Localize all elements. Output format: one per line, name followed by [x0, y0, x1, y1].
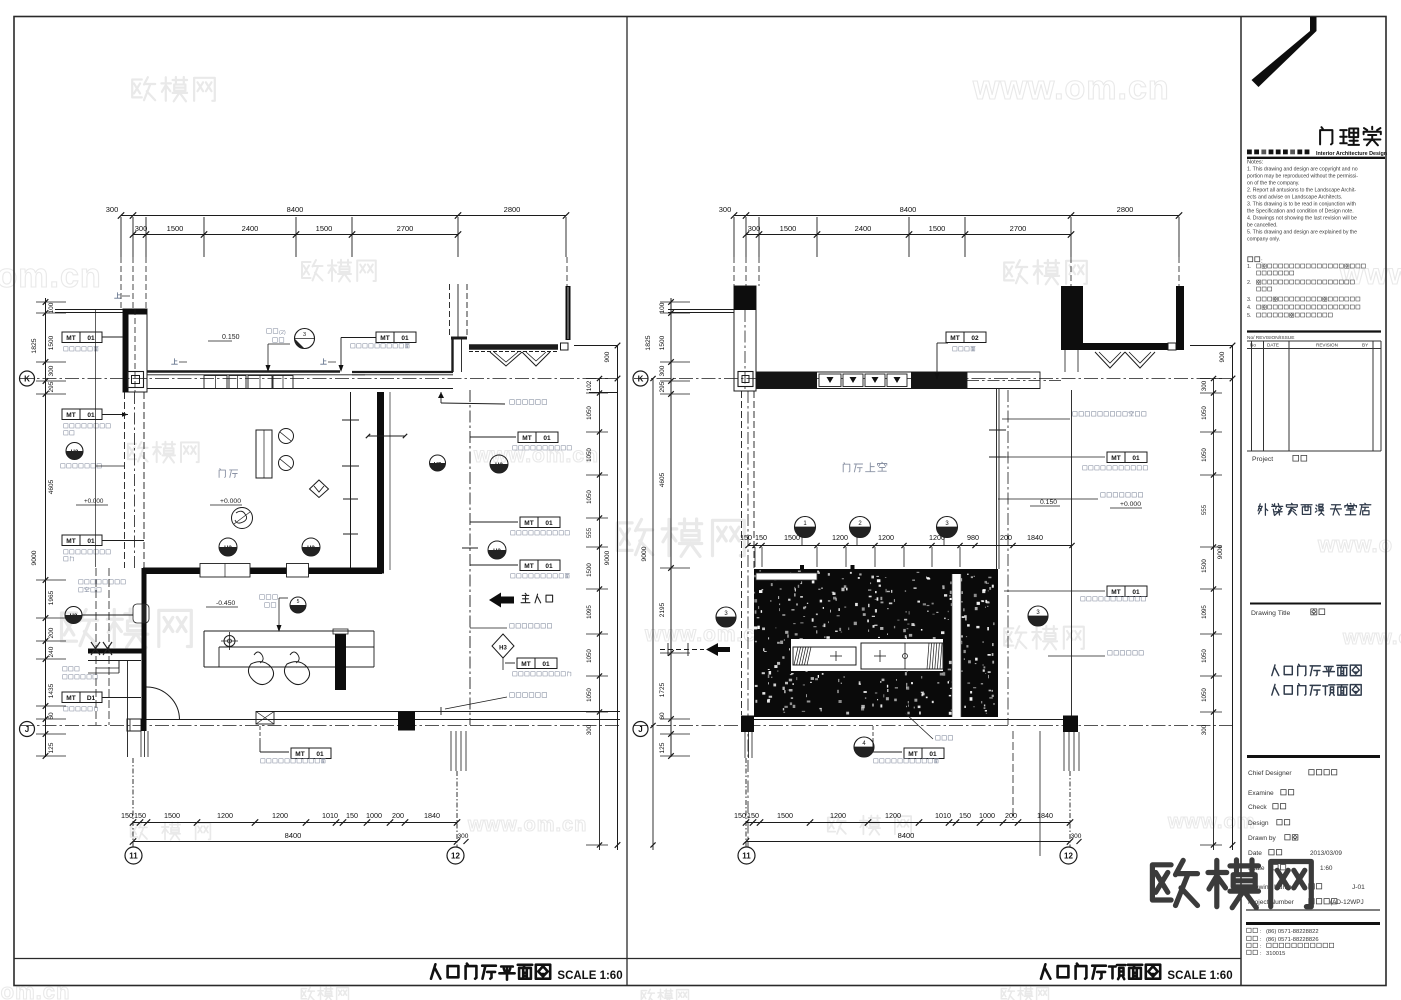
svg-text:+0.000: +0.000: [84, 498, 104, 505]
svg-text:H3: H3: [499, 646, 507, 652]
svg-text:SCALE 1:60: SCALE 1:60: [1167, 970, 1232, 982]
svg-text:MT: MT: [66, 412, 75, 419]
svg-text:60: 60: [48, 712, 55, 720]
svg-text:-0.450: -0.450: [216, 600, 235, 607]
svg-text:(2): (2): [279, 330, 286, 336]
svg-text:1965: 1965: [48, 590, 55, 605]
svg-text:01: 01: [1132, 589, 1140, 596]
svg-text:900: 900: [1219, 351, 1226, 362]
svg-text:(86) 0571-88228826: (86) 0571-88228826: [1266, 937, 1319, 943]
svg-text:5.: 5.: [1247, 313, 1252, 319]
svg-text:1725: 1725: [659, 682, 666, 697]
svg-text:1010: 1010: [935, 811, 951, 820]
svg-text:150: 150: [346, 811, 358, 820]
svg-text:310015: 310015: [1266, 951, 1285, 957]
svg-text:company only.: company only.: [1247, 237, 1280, 243]
svg-text:240: 240: [48, 646, 55, 657]
svg-text:MT: MT: [66, 538, 75, 545]
svg-text:4605: 4605: [659, 472, 666, 487]
svg-text:www.om.cn: www.om.cn: [467, 814, 587, 836]
svg-text:www.om.cn: www.om.cn: [473, 444, 599, 467]
svg-text:9000: 9000: [31, 550, 38, 565]
svg-text:300: 300: [135, 224, 148, 233]
svg-text:0.150: 0.150: [222, 334, 240, 341]
svg-text:02: 02: [971, 335, 979, 342]
svg-text:01: 01: [87, 538, 95, 545]
svg-text:12: 12: [1064, 852, 1073, 861]
svg-text:125: 125: [659, 742, 666, 753]
svg-text:1050: 1050: [586, 490, 593, 504]
svg-text:150: 150: [121, 811, 133, 820]
svg-text:MT: MT: [1111, 589, 1120, 596]
svg-text:1.: 1.: [1247, 264, 1252, 270]
svg-text:MT: MT: [66, 695, 75, 702]
svg-text:300: 300: [106, 205, 119, 214]
svg-text:1200: 1200: [885, 811, 901, 820]
svg-text:No/ REVISION/ISSUE: No/ REVISION/ISSUE: [1247, 335, 1294, 341]
svg-text:295: 295: [659, 381, 666, 392]
svg-text:1825: 1825: [31, 338, 38, 353]
svg-text:2013/03/09: 2013/03/09: [1310, 850, 1342, 857]
svg-text:1050: 1050: [1201, 448, 1208, 462]
svg-text:5. This drawing and design are: 5. This drawing and design are explained…: [1247, 230, 1357, 236]
svg-text:Check: Check: [1248, 804, 1267, 811]
svg-text:MT: MT: [950, 335, 959, 342]
svg-text:01: 01: [545, 563, 553, 570]
svg-text:2700: 2700: [1010, 224, 1027, 233]
svg-text:1050: 1050: [1201, 649, 1208, 663]
svg-text:1840: 1840: [1037, 811, 1053, 820]
svg-text:1050: 1050: [586, 406, 593, 420]
svg-text:1200: 1200: [217, 811, 233, 820]
svg-text:+0.000: +0.000: [1120, 501, 1141, 508]
svg-text:900: 900: [604, 351, 611, 362]
svg-text:MT: MT: [524, 520, 533, 527]
svg-text:MT: MT: [66, 335, 75, 342]
svg-text:MT: MT: [521, 661, 530, 668]
svg-text:2700: 2700: [397, 224, 414, 233]
svg-text:1050: 1050: [1201, 688, 1208, 702]
svg-text:1050: 1050: [586, 688, 593, 702]
svg-text:150: 150: [134, 811, 146, 820]
svg-text:9000: 9000: [604, 550, 611, 565]
svg-text:2400: 2400: [242, 224, 259, 233]
svg-text:be cancelled.: be cancelled.: [1247, 223, 1278, 229]
svg-text:1010: 1010: [322, 811, 338, 820]
svg-text:200: 200: [48, 627, 55, 638]
svg-text:5: 5: [297, 599, 300, 605]
svg-text:300: 300: [1201, 724, 1208, 735]
svg-text:01: 01: [1132, 455, 1140, 462]
svg-text:on of the the company.: on of the the company.: [1247, 181, 1299, 187]
svg-text:J: J: [638, 725, 642, 734]
svg-text:SCALE 1:60: SCALE 1:60: [557, 970, 622, 982]
svg-text:300: 300: [48, 365, 55, 376]
svg-text:ects and advise on Landscape: ects and advise on Landscape Architects.: [1247, 195, 1342, 201]
svg-text:295: 295: [48, 381, 55, 392]
svg-text:2800: 2800: [504, 205, 521, 214]
svg-text:1:60: 1:60: [1320, 865, 1333, 872]
svg-text:(86) 0571-88228822: (86) 0571-88228822: [1266, 929, 1319, 935]
svg-text:4. Drawings not showing the la: 4. Drawings not showing the last revisio…: [1247, 216, 1357, 222]
svg-text:2195: 2195: [659, 602, 666, 617]
svg-text:01: 01: [543, 435, 551, 442]
svg-text:Notes:: Notes:: [1247, 160, 1264, 166]
svg-text:Chief Designer: Chief Designer: [1248, 770, 1292, 777]
svg-text:60: 60: [659, 712, 666, 720]
svg-text:K: K: [24, 375, 30, 384]
svg-text:1000: 1000: [366, 811, 382, 820]
svg-text:100: 100: [48, 302, 55, 313]
svg-text:100: 100: [659, 302, 666, 313]
svg-text:1000: 1000: [979, 811, 995, 820]
svg-text:300: 300: [1201, 380, 1208, 391]
svg-text:Drawn by: Drawn by: [1248, 835, 1277, 842]
svg-text:Project: Project: [1252, 456, 1273, 463]
svg-text:200: 200: [1000, 533, 1012, 542]
svg-text:125: 125: [48, 742, 55, 753]
svg-text:8400: 8400: [900, 205, 917, 214]
svg-text:01: 01: [545, 520, 553, 527]
svg-text:01: 01: [929, 751, 937, 758]
svg-text:2400: 2400: [855, 224, 872, 233]
svg-text:1500: 1500: [1201, 559, 1208, 573]
svg-text:Date: Date: [1248, 850, 1262, 857]
svg-text:1500: 1500: [316, 224, 333, 233]
svg-text:MT: MT: [522, 435, 531, 442]
svg-text:1840: 1840: [1027, 533, 1043, 542]
svg-text:1840: 1840: [424, 811, 440, 820]
svg-text:MT: MT: [295, 751, 304, 758]
svg-text:1200: 1200: [832, 533, 848, 542]
svg-text:11: 11: [742, 852, 751, 861]
svg-text:+0.000: +0.000: [220, 498, 241, 505]
svg-text:1500: 1500: [780, 224, 797, 233]
svg-text:1500: 1500: [929, 224, 946, 233]
svg-text:4.: 4.: [1247, 305, 1252, 311]
svg-text:1200: 1200: [830, 811, 846, 820]
svg-text:1500: 1500: [586, 563, 593, 577]
svg-text:980: 980: [967, 533, 979, 542]
svg-text:1050: 1050: [1201, 406, 1208, 420]
svg-text:1435: 1435: [48, 683, 55, 698]
svg-text:300: 300: [586, 724, 593, 735]
svg-text:4605: 4605: [48, 479, 55, 494]
svg-text:555: 555: [586, 527, 593, 538]
svg-text:0.150: 0.150: [1040, 499, 1057, 506]
svg-text:8400: 8400: [285, 831, 302, 840]
svg-text:Drawing Title: Drawing Title: [1251, 610, 1291, 617]
svg-text:1500: 1500: [48, 335, 55, 350]
svg-text:01: 01: [87, 335, 95, 342]
svg-text:MT: MT: [908, 751, 917, 758]
svg-text:1095: 1095: [1201, 605, 1208, 619]
svg-text:3: 3: [303, 332, 306, 338]
svg-text:www.o: www.o: [1317, 532, 1393, 557]
svg-text:3.: 3.: [1247, 297, 1252, 303]
svg-text:1. This drawing and design are: 1. This drawing and design are copyright…: [1247, 167, 1358, 173]
svg-text:MT: MT: [1111, 455, 1120, 462]
svg-text:portion may be reproduced with: portion may be reproduced without the pe…: [1247, 174, 1358, 180]
svg-text:300: 300: [1071, 833, 1082, 840]
svg-text:MT: MT: [524, 563, 533, 570]
svg-text:www.om.cn: www.om.cn: [0, 979, 70, 1000]
svg-text:1200: 1200: [272, 811, 288, 820]
svg-text:01: 01: [316, 751, 324, 758]
svg-text:200: 200: [1005, 811, 1017, 820]
svg-text:REVISION: REVISION: [1316, 343, 1338, 348]
svg-text:1200: 1200: [878, 533, 894, 542]
svg-text:200: 200: [392, 811, 404, 820]
svg-text:(AD-12WPJ: (AD-12WPJ: [1330, 899, 1364, 906]
svg-text:www.om.cn: www.om.cn: [0, 257, 102, 295]
svg-text:1825: 1825: [645, 335, 652, 350]
svg-text:150: 150: [740, 533, 752, 542]
svg-text:1095: 1095: [586, 605, 593, 619]
svg-text:1500: 1500: [659, 335, 666, 350]
svg-text:1500: 1500: [777, 811, 793, 820]
svg-text:2.: 2.: [1247, 280, 1252, 286]
svg-text:12: 12: [451, 852, 460, 861]
svg-text:150: 150: [755, 533, 767, 542]
svg-text:www.o: www.o: [1339, 258, 1401, 291]
svg-text:1050: 1050: [586, 448, 593, 462]
svg-text:9000: 9000: [1217, 544, 1224, 559]
svg-text:9000: 9000: [641, 546, 648, 561]
svg-text:150: 150: [734, 811, 746, 820]
svg-text:8400: 8400: [898, 831, 915, 840]
svg-text:www.om: www.om: [1167, 811, 1255, 833]
svg-text:01: 01: [401, 335, 409, 342]
svg-text:Interior Architecture Design: Interior Architecture Design: [1316, 151, 1387, 157]
svg-text:www.om.cn: www.om.cn: [972, 69, 1170, 107]
svg-text:2800: 2800: [1117, 205, 1134, 214]
svg-text:3. This drawing is to be read: 3. This drawing is to be read in conjunc…: [1247, 202, 1356, 208]
svg-text:8400: 8400: [287, 205, 304, 214]
svg-text:1500: 1500: [164, 811, 180, 820]
svg-text:No: No: [1250, 343, 1256, 348]
svg-text:2. Report all antusions to the: 2. Report all antusions to the Landscape…: [1247, 188, 1356, 194]
svg-text:Examine: Examine: [1248, 790, 1274, 797]
svg-text:102: 102: [586, 380, 593, 391]
svg-text:300: 300: [659, 365, 666, 376]
svg-text:www.om.cn: www.om.cn: [644, 623, 770, 646]
svg-text:www.om: www.om: [1342, 627, 1401, 649]
svg-text:150: 150: [959, 811, 971, 820]
svg-text:300: 300: [748, 224, 761, 233]
svg-text:300: 300: [458, 833, 469, 840]
svg-text:D1: D1: [87, 695, 96, 702]
svg-text:the Specification and conditio: the Specification and condition of Desig…: [1247, 209, 1354, 215]
svg-text:MT: MT: [380, 335, 389, 342]
svg-text:1500: 1500: [167, 224, 184, 233]
svg-text:BY: BY: [1362, 343, 1368, 348]
svg-text:K: K: [638, 375, 644, 384]
svg-text:J: J: [25, 725, 29, 734]
svg-text:150: 150: [747, 811, 759, 820]
svg-text:555: 555: [1201, 504, 1208, 515]
svg-text:DATE: DATE: [1267, 343, 1279, 348]
svg-text:11: 11: [129, 852, 138, 861]
svg-text:300: 300: [719, 205, 732, 214]
svg-text:01: 01: [87, 412, 95, 419]
svg-text:1050: 1050: [586, 649, 593, 663]
svg-text:01: 01: [542, 661, 550, 668]
svg-text:Design: Design: [1248, 820, 1269, 827]
svg-text:J-01: J-01: [1352, 884, 1365, 891]
